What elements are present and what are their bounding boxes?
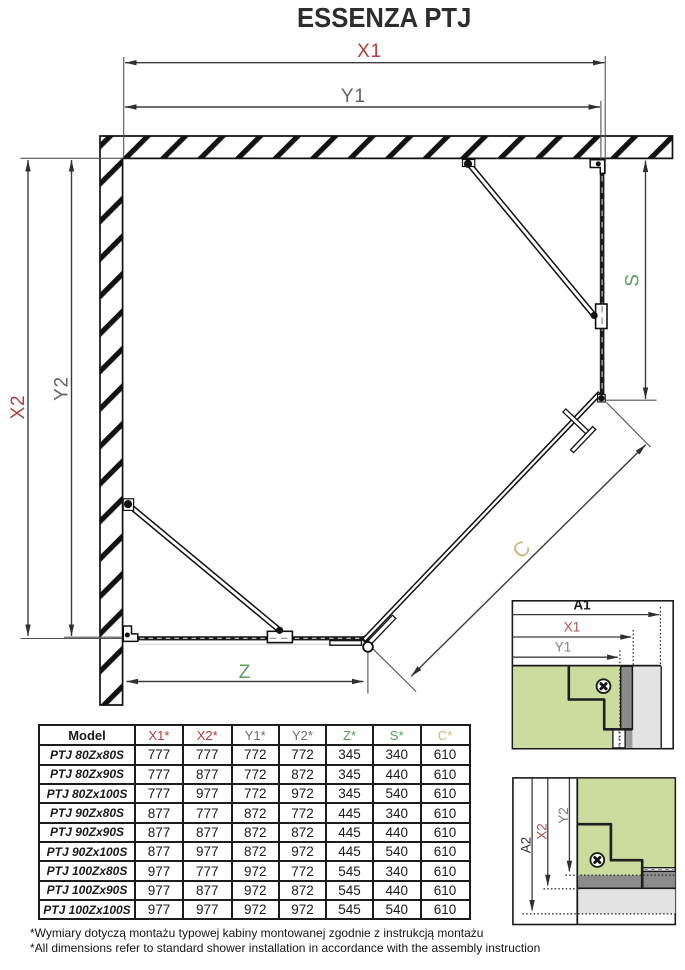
svg-text:Y1: Y1 [341,86,366,107]
svg-text:X1: X1 [564,620,581,635]
svg-text:X1: X1 [357,41,382,62]
svg-text:Y2: Y2 [556,807,571,824]
svg-text:C: C [508,536,536,564]
svg-text:Z: Z [239,662,251,683]
svg-text:Y1: Y1 [555,640,572,655]
svg-text:X2: X2 [8,395,29,420]
svg-text:X2: X2 [534,823,549,840]
svg-text:A1: A1 [573,598,591,613]
svg-text:Y2: Y2 [52,376,73,401]
svg-text:A2: A2 [519,837,534,854]
svg-text:S: S [623,273,644,286]
